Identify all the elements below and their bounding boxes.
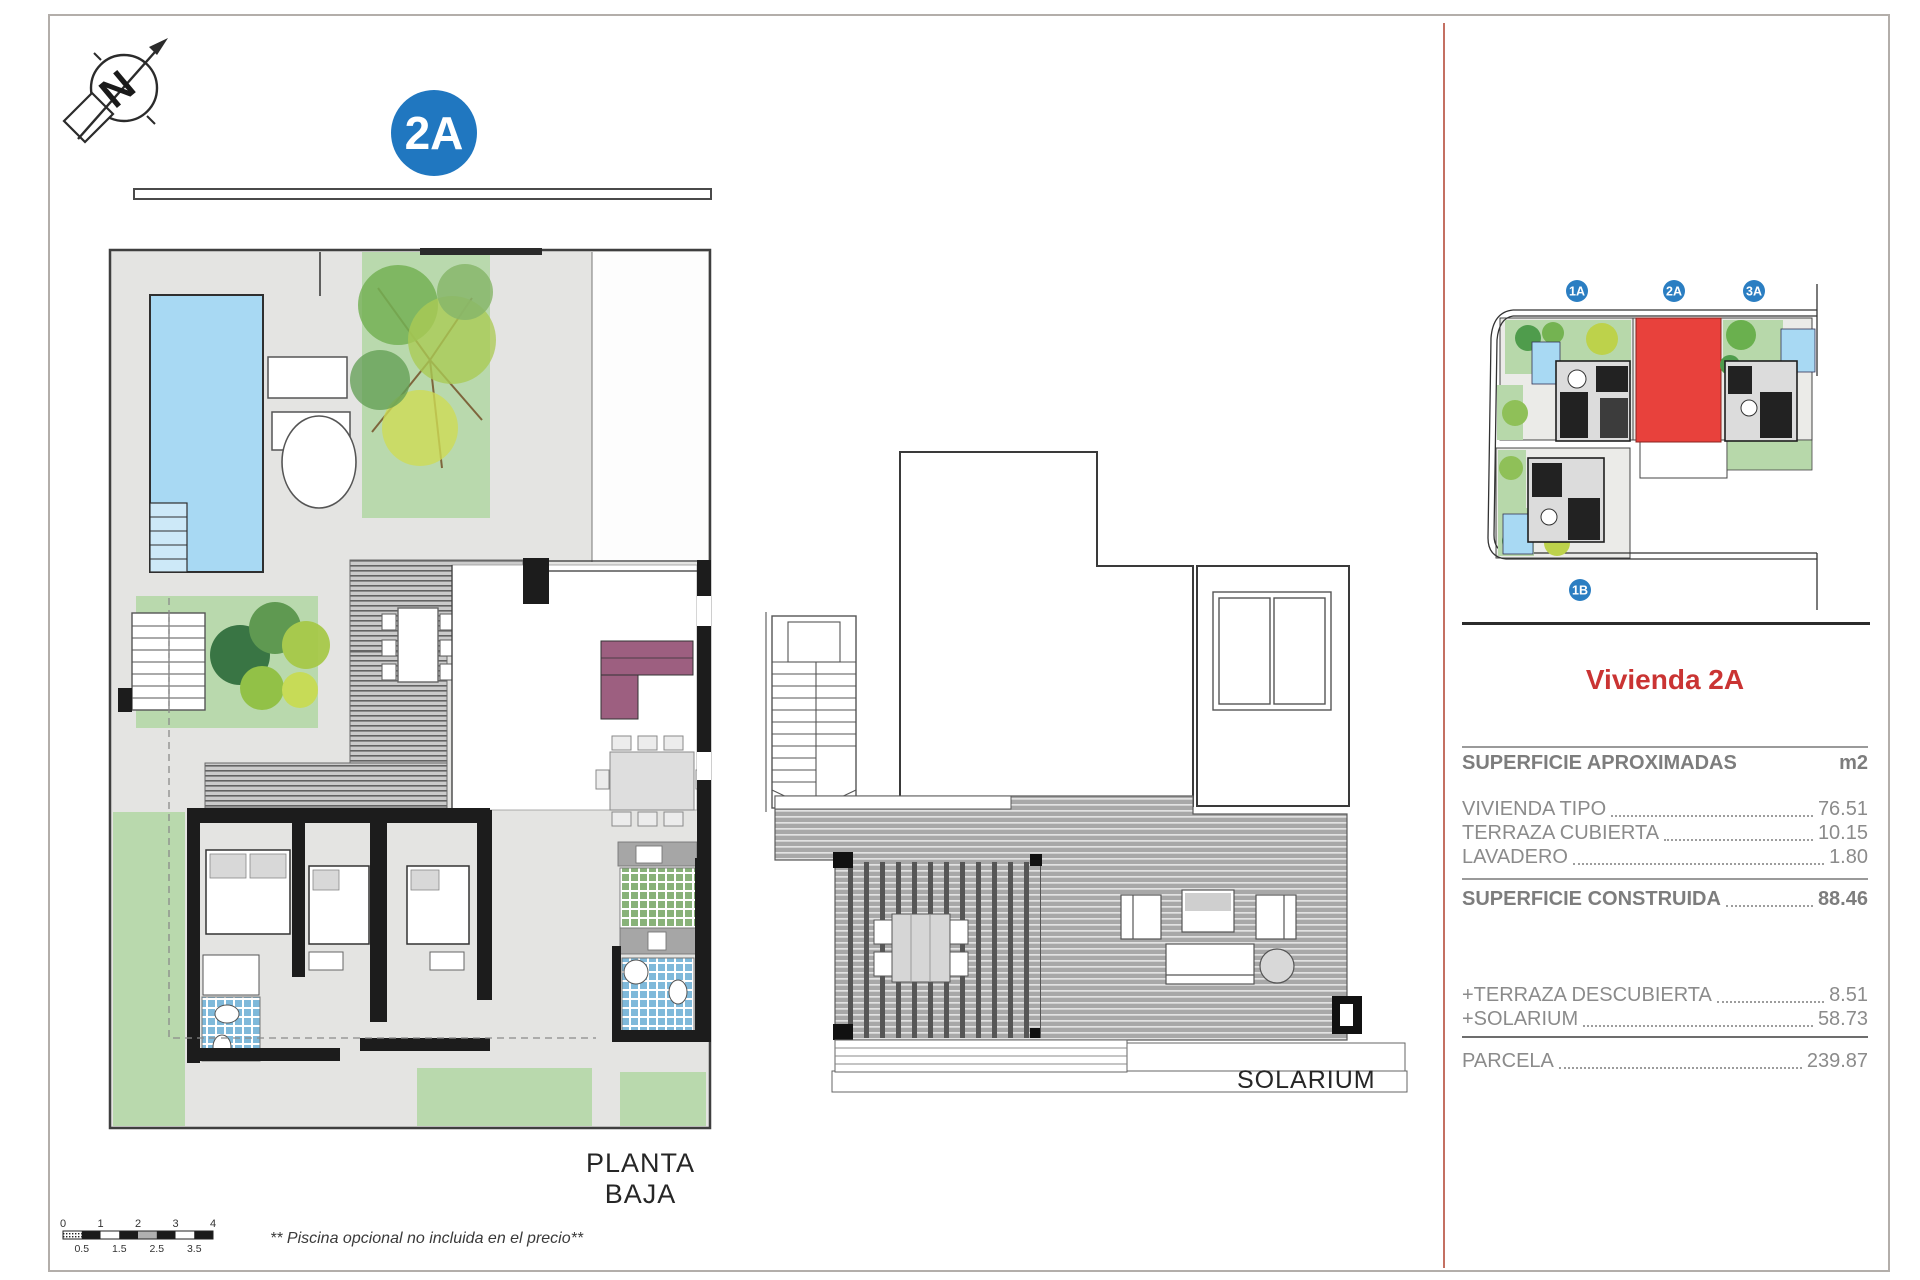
scale-major-0: 0 (60, 1218, 66, 1230)
solarium-caption: SOLARIUM (1237, 1066, 1367, 1095)
bathroom-left (202, 955, 260, 1061)
unit-badge: 2A (391, 90, 477, 176)
table-row-parcela: PARCELA 239.87 (1462, 1050, 1868, 1073)
row-value: 58.73 (1818, 1008, 1868, 1031)
bathroom-right (622, 958, 694, 1032)
ground-floor-plan (105, 245, 730, 1145)
row-label: PARCELA (1462, 1050, 1554, 1073)
scale-major-3: 3 (172, 1218, 178, 1230)
chimney (1332, 996, 1362, 1034)
roof-structure (900, 452, 1193, 806)
site-badge-1b: 1B (1572, 584, 1588, 598)
table-header: SUPERFICIE APROXIMADAS m2 (1462, 752, 1868, 775)
title-underline-bar (133, 188, 712, 200)
scale-minor-1: 1.5 (112, 1243, 127, 1255)
scale-major-4: 4 (210, 1218, 216, 1230)
row-label: SUPERFICIE CONSTRUIDA (1462, 888, 1721, 911)
plot-1b-content (1498, 450, 1604, 556)
panel-divider-line (1462, 622, 1870, 625)
skylight-structure (1197, 566, 1349, 806)
scale-minor-2: 2.5 (149, 1243, 164, 1255)
dot-leader (1583, 1025, 1813, 1027)
stairs (766, 612, 856, 812)
scale-bar: 0 1 2 3 4 0.5 1.5 2.5 3.5 (55, 1216, 225, 1260)
north-arrow-icon: N (58, 26, 180, 150)
dot-leader (1726, 905, 1813, 907)
row-value: 239.87 (1807, 1050, 1868, 1073)
table-row: TERRAZA CUBIERTA 10.15 (1462, 822, 1868, 845)
table-row: +SOLARIUM 58.73 (1462, 1008, 1868, 1031)
scale-minor-0: 0.5 (74, 1243, 89, 1255)
scale-major-2: 2 (135, 1218, 141, 1230)
row-value: 8.51 (1829, 984, 1868, 1007)
row-value: 1.80 (1829, 846, 1868, 869)
panel-title: Vivienda 2A (1462, 664, 1868, 696)
table-row: LAVADERO 1.80 (1462, 846, 1868, 869)
dot-leader (1717, 1001, 1824, 1003)
scale-major-1: 1 (97, 1218, 103, 1230)
dot-leader (1559, 1067, 1802, 1069)
table-line (1462, 1036, 1868, 1038)
table-header-label: SUPERFICIE APROXIMADAS (1462, 752, 1737, 775)
plot-2a-highlight (1636, 318, 1721, 442)
wall-corner (523, 558, 549, 604)
walkway (775, 796, 1011, 809)
row-label: +SOLARIUM (1462, 1008, 1578, 1031)
kitchen (618, 842, 697, 954)
round-table (282, 416, 356, 508)
row-value: 76.51 (1818, 798, 1868, 821)
table-row: VIVIENDA TIPO 76.51 (1462, 798, 1868, 821)
row-value: 88.46 (1818, 888, 1868, 911)
swimming-pool (150, 295, 263, 572)
site-badge-3a: 3A (1746, 285, 1762, 299)
site-badge-2a: 2A (1666, 285, 1682, 299)
row-label: TERRAZA CUBIERTA (1462, 822, 1659, 845)
solarium-plan (745, 440, 1425, 1120)
table-header-unit: m2 (1839, 752, 1868, 775)
table-line (1462, 878, 1868, 880)
site-badge-1a: 1A (1569, 285, 1585, 299)
scale-minor-3: 3.5 (187, 1243, 202, 1255)
red-divider-line (1443, 23, 1445, 1268)
dot-leader (1573, 863, 1824, 865)
dot-leader (1611, 815, 1813, 817)
table-line (1462, 746, 1868, 748)
table-row-construida: SUPERFICIE CONSTRUIDA 88.46 (1462, 888, 1868, 911)
outdoor-dining-table (382, 608, 454, 682)
row-label: +TERRAZA DESCUBIERTA (1462, 984, 1712, 1007)
ground-floor-caption: PLANTA BAJA (553, 1148, 728, 1210)
pool-footnote: ** Piscina opcional no incluida en el pr… (270, 1230, 790, 1248)
side-strip (592, 252, 708, 562)
plan-sheet: N 2A (0, 0, 1920, 1280)
dot-leader (1664, 839, 1813, 841)
row-label: LAVADERO (1462, 846, 1568, 869)
row-label: VIVIENDA TIPO (1462, 798, 1606, 821)
site-plan: 1A 2A 3A 1B (1480, 272, 1910, 612)
row-value: 10.15 (1818, 822, 1868, 845)
table-row: +TERRAZA DESCUBIERTA 8.51 (1462, 984, 1868, 1007)
